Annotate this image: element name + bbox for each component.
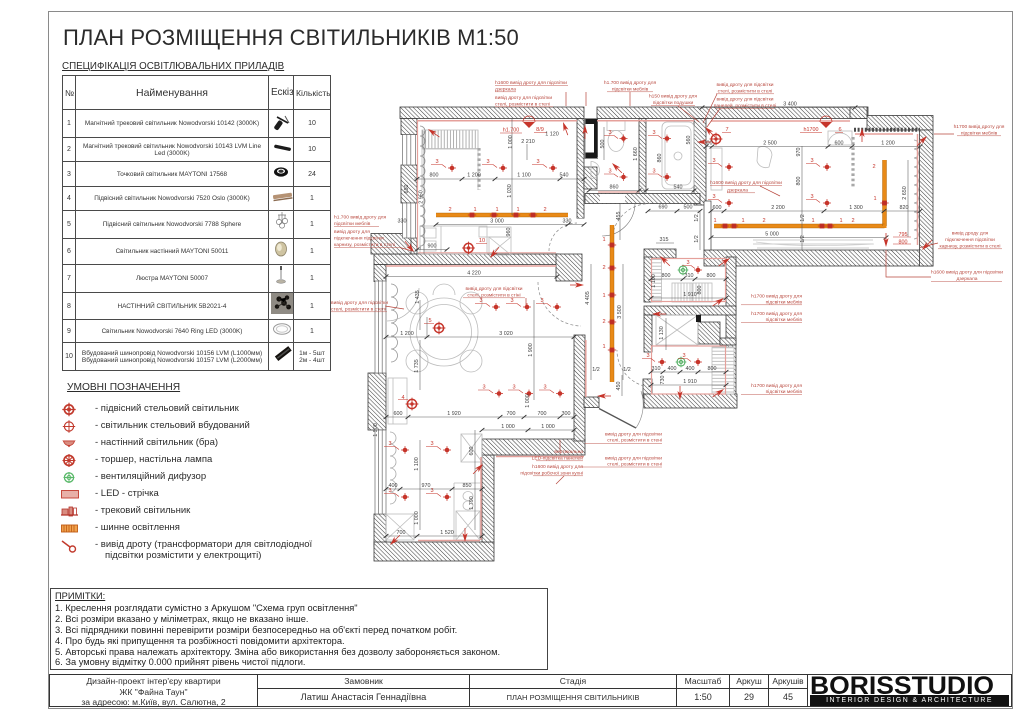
svg-text:3: 3	[486, 159, 489, 165]
svg-text:1 300: 1 300	[849, 205, 863, 211]
svg-text:850: 850	[463, 483, 472, 489]
svg-text:1 100: 1 100	[414, 457, 420, 471]
svg-text:600: 600	[469, 447, 475, 456]
svg-text:1: 1	[741, 218, 744, 224]
svg-text:1: 1	[602, 293, 605, 299]
svg-text:h1.700 вивід дроту для: h1.700 вивід дроту для	[604, 80, 657, 86]
svg-text:2: 2	[602, 319, 605, 325]
svg-text:1 200: 1 200	[400, 331, 414, 337]
svg-text:600: 600	[713, 205, 722, 211]
svg-text:1/2: 1/2	[800, 214, 806, 222]
svg-text:400: 400	[668, 366, 677, 372]
svg-text:900: 900	[428, 244, 437, 250]
svg-text:1 435: 1 435	[415, 290, 421, 304]
svg-text:h1600 вивід дроту для підсвітк: h1600 вивід дроту для підсвітки	[931, 270, 1003, 276]
svg-text:3: 3	[810, 194, 813, 200]
svg-text:3 020: 3 020	[499, 331, 513, 337]
svg-text:1: 1	[602, 237, 605, 243]
svg-text:4 405: 4 405	[585, 291, 591, 305]
svg-text:3: 3	[652, 130, 655, 136]
svg-text:730: 730	[660, 376, 666, 385]
svg-text:690: 690	[659, 205, 668, 211]
svg-text:540: 540	[560, 173, 569, 179]
svg-text:4 220: 4 220	[467, 271, 481, 277]
svg-text:1 030: 1 030	[507, 184, 513, 198]
svg-text:2 950: 2 950	[419, 190, 425, 204]
svg-text:1 100: 1 100	[517, 173, 531, 179]
svg-text:2: 2	[872, 164, 875, 170]
svg-text:вивід дроту для підсвітки: вивід дроту для підсвітки	[605, 456, 662, 462]
svg-text:1 000: 1 000	[525, 394, 531, 408]
svg-text:820: 820	[900, 205, 909, 211]
svg-text:h1.700: h1.700	[503, 128, 520, 134]
svg-text:1 500: 1 500	[373, 423, 379, 437]
svg-text:3: 3	[608, 130, 611, 136]
svg-text:вертикальна: вертикальна	[554, 450, 583, 455]
svg-text:1 735: 1 735	[414, 359, 420, 373]
svg-text:1 000: 1 000	[501, 424, 515, 430]
svg-text:6: 6	[838, 127, 841, 133]
svg-text:1: 1	[839, 218, 842, 224]
svg-text:860: 860	[610, 185, 619, 191]
svg-text:h1700: h1700	[804, 127, 819, 133]
svg-text:5 000: 5 000	[765, 232, 779, 238]
svg-text:вивід дроту для підсвітки: вивід дроту для підсвітки	[716, 97, 773, 103]
svg-text:1 790: 1 790	[469, 496, 475, 510]
svg-text:970: 970	[796, 148, 802, 157]
svg-text:вивід дроду для: вивід дроду для	[952, 231, 989, 237]
svg-text:700: 700	[538, 411, 547, 417]
svg-text:h1600 вивід дроту для: h1600 вивід дроту для	[532, 464, 583, 470]
svg-text:3: 3	[712, 194, 715, 200]
svg-text:8/9: 8/9	[536, 127, 544, 133]
svg-text:800: 800	[662, 273, 671, 279]
svg-text:2: 2	[762, 218, 765, 224]
svg-text:1 000: 1 000	[541, 424, 555, 430]
svg-text:310: 310	[685, 273, 694, 279]
svg-text:2: 2	[602, 265, 605, 271]
svg-text:1 200: 1 200	[467, 173, 481, 179]
svg-text:3: 3	[608, 169, 611, 175]
svg-text:3: 3	[682, 353, 685, 359]
svg-text:700: 700	[507, 411, 516, 417]
svg-text:1 900: 1 900	[528, 343, 534, 357]
svg-text:підсвітки меблів: підсвітки меблів	[334, 221, 371, 227]
svg-text:1 130: 1 130	[659, 326, 665, 340]
svg-text:3 500: 3 500	[617, 305, 623, 319]
svg-text:1: 1	[516, 207, 519, 213]
svg-text:1: 1	[495, 207, 498, 213]
svg-text:підключення підсвітки: підключення підсвітки	[945, 237, 995, 243]
svg-text:h150 вивід дроту для: h150 вивід дроту для	[649, 94, 697, 100]
svg-text:3: 3	[388, 441, 391, 447]
svg-text:400: 400	[389, 483, 398, 489]
svg-text:3: 3	[646, 353, 649, 359]
svg-text:800: 800	[430, 173, 439, 179]
svg-text:860: 860	[657, 154, 663, 163]
svg-text:1/2: 1/2	[694, 235, 700, 243]
svg-text:вивід дроту для підсвітки: вивід дроту для підсвітки	[716, 82, 773, 88]
svg-text:підключення підсвітки: підключення підсвітки	[334, 236, 384, 242]
svg-text:вивід дроту для підсвітки: вивід дроту для підсвітки	[465, 286, 522, 292]
svg-text:1: 1	[713, 218, 716, 224]
svg-text:панелей, розмістити в стелі: панелей, розмістити в стелі	[714, 102, 777, 109]
svg-text:3: 3	[510, 298, 513, 304]
svg-text:3: 3	[686, 260, 689, 266]
svg-text:330: 330	[398, 219, 407, 225]
svg-text:700: 700	[397, 530, 406, 536]
svg-text:2 210: 2 210	[521, 139, 535, 145]
svg-text:800: 800	[708, 366, 717, 372]
svg-text:3: 3	[810, 158, 813, 164]
svg-text:455: 455	[616, 212, 622, 221]
svg-text:5: 5	[428, 318, 431, 324]
svg-text:3: 3	[479, 298, 482, 304]
svg-text:300: 300	[562, 411, 571, 417]
svg-text:3: 3	[543, 385, 546, 391]
svg-text:3: 3	[540, 298, 543, 304]
svg-text:1/2: 1/2	[623, 367, 631, 373]
svg-text:стелі, розмістити в стені: стелі, розмістити в стені	[607, 438, 662, 444]
svg-text:3: 3	[512, 385, 515, 391]
svg-text:3: 3	[652, 169, 655, 175]
svg-text:вивід дроту для: вивід дроту для	[334, 229, 370, 235]
svg-text:3 400: 3 400	[783, 102, 797, 108]
svg-text:1 000: 1 000	[508, 135, 514, 149]
svg-text:2: 2	[448, 207, 451, 213]
svg-text:7: 7	[725, 127, 728, 133]
svg-text:1/2: 1/2	[800, 235, 806, 243]
svg-text:стелі, розмістити в стені: стелі, розмістити в стені	[607, 462, 662, 468]
svg-text:3 000: 3 000	[490, 219, 504, 225]
svg-text:h1700 вивід дроту для: h1700 вивід дроту для	[751, 294, 802, 300]
svg-text:800: 800	[899, 240, 908, 246]
svg-text:500: 500	[600, 140, 606, 149]
svg-text:1 520: 1 520	[440, 530, 454, 536]
svg-text:2 650: 2 650	[902, 186, 908, 200]
svg-text:1: 1	[473, 207, 476, 213]
svg-text:400: 400	[686, 366, 695, 372]
svg-text:1/2: 1/2	[694, 214, 700, 222]
svg-text:1 920: 1 920	[447, 411, 461, 417]
svg-text:h1700 вивід дроту для: h1700 вивід дроту для	[751, 383, 802, 389]
svg-text:вивід дроту для підсвітки: вивід дроту для підсвітки	[331, 300, 388, 306]
svg-text:3: 3	[435, 159, 438, 165]
svg-text:1 200: 1 200	[881, 141, 895, 147]
svg-text:3: 3	[482, 385, 485, 391]
svg-text:450: 450	[616, 382, 622, 391]
svg-text:h1.700 вивід дроту для: h1.700 вивід дроту для	[334, 215, 387, 221]
svg-text:600: 600	[835, 141, 844, 147]
svg-text:1/2: 1/2	[592, 367, 600, 373]
svg-text:650: 650	[404, 185, 410, 194]
svg-text:540: 540	[674, 185, 683, 191]
svg-text:1 100: 1 100	[651, 274, 657, 288]
svg-text:1: 1	[602, 344, 605, 350]
svg-text:3: 3	[712, 158, 715, 164]
svg-text:1 910: 1 910	[683, 379, 697, 385]
svg-text:800: 800	[697, 286, 703, 295]
svg-text:h1700 вивід дроту для: h1700 вивід дроту для	[751, 311, 802, 317]
svg-text:4: 4	[401, 395, 404, 401]
svg-text:3: 3	[430, 441, 433, 447]
svg-text:1 910: 1 910	[683, 292, 697, 298]
svg-text:2 200: 2 200	[771, 205, 785, 211]
svg-text:2: 2	[543, 207, 546, 213]
svg-text:960: 960	[506, 228, 512, 237]
svg-text:карнизу, розмістити в стелі: карнизу, розмістити в стелі	[334, 242, 395, 248]
svg-text:1 120: 1 120	[545, 132, 559, 138]
svg-text:970: 970	[422, 483, 431, 489]
svg-text:560: 560	[686, 136, 692, 145]
svg-text:1 000: 1 000	[414, 511, 420, 525]
svg-text:3: 3	[536, 159, 539, 165]
svg-text:10: 10	[479, 238, 485, 244]
svg-text:800: 800	[707, 273, 716, 279]
svg-text:1: 1	[811, 218, 814, 224]
svg-text:вивід дроту для підсвітки: вивід дроту для підсвітки	[605, 432, 662, 438]
svg-text:330: 330	[563, 219, 572, 225]
svg-text:2: 2	[851, 218, 854, 224]
svg-text:800: 800	[796, 177, 802, 186]
svg-text:h1700 вивід дроту для: h1700 вивід дроту для	[954, 124, 1005, 130]
svg-text:310: 310	[652, 366, 661, 372]
svg-text:315: 315	[660, 237, 669, 243]
svg-text:вивід дроту для підсвітки: вивід дроту для підсвітки	[495, 95, 552, 101]
svg-text:500: 500	[684, 205, 693, 211]
svg-text:600: 600	[394, 411, 403, 417]
svg-text:1 660: 1 660	[633, 147, 639, 161]
svg-text:2 500: 2 500	[763, 141, 777, 147]
svg-text:LED-підсвітка панелей: LED-підсвітка панелей	[532, 455, 584, 462]
svg-text:1: 1	[873, 196, 876, 202]
